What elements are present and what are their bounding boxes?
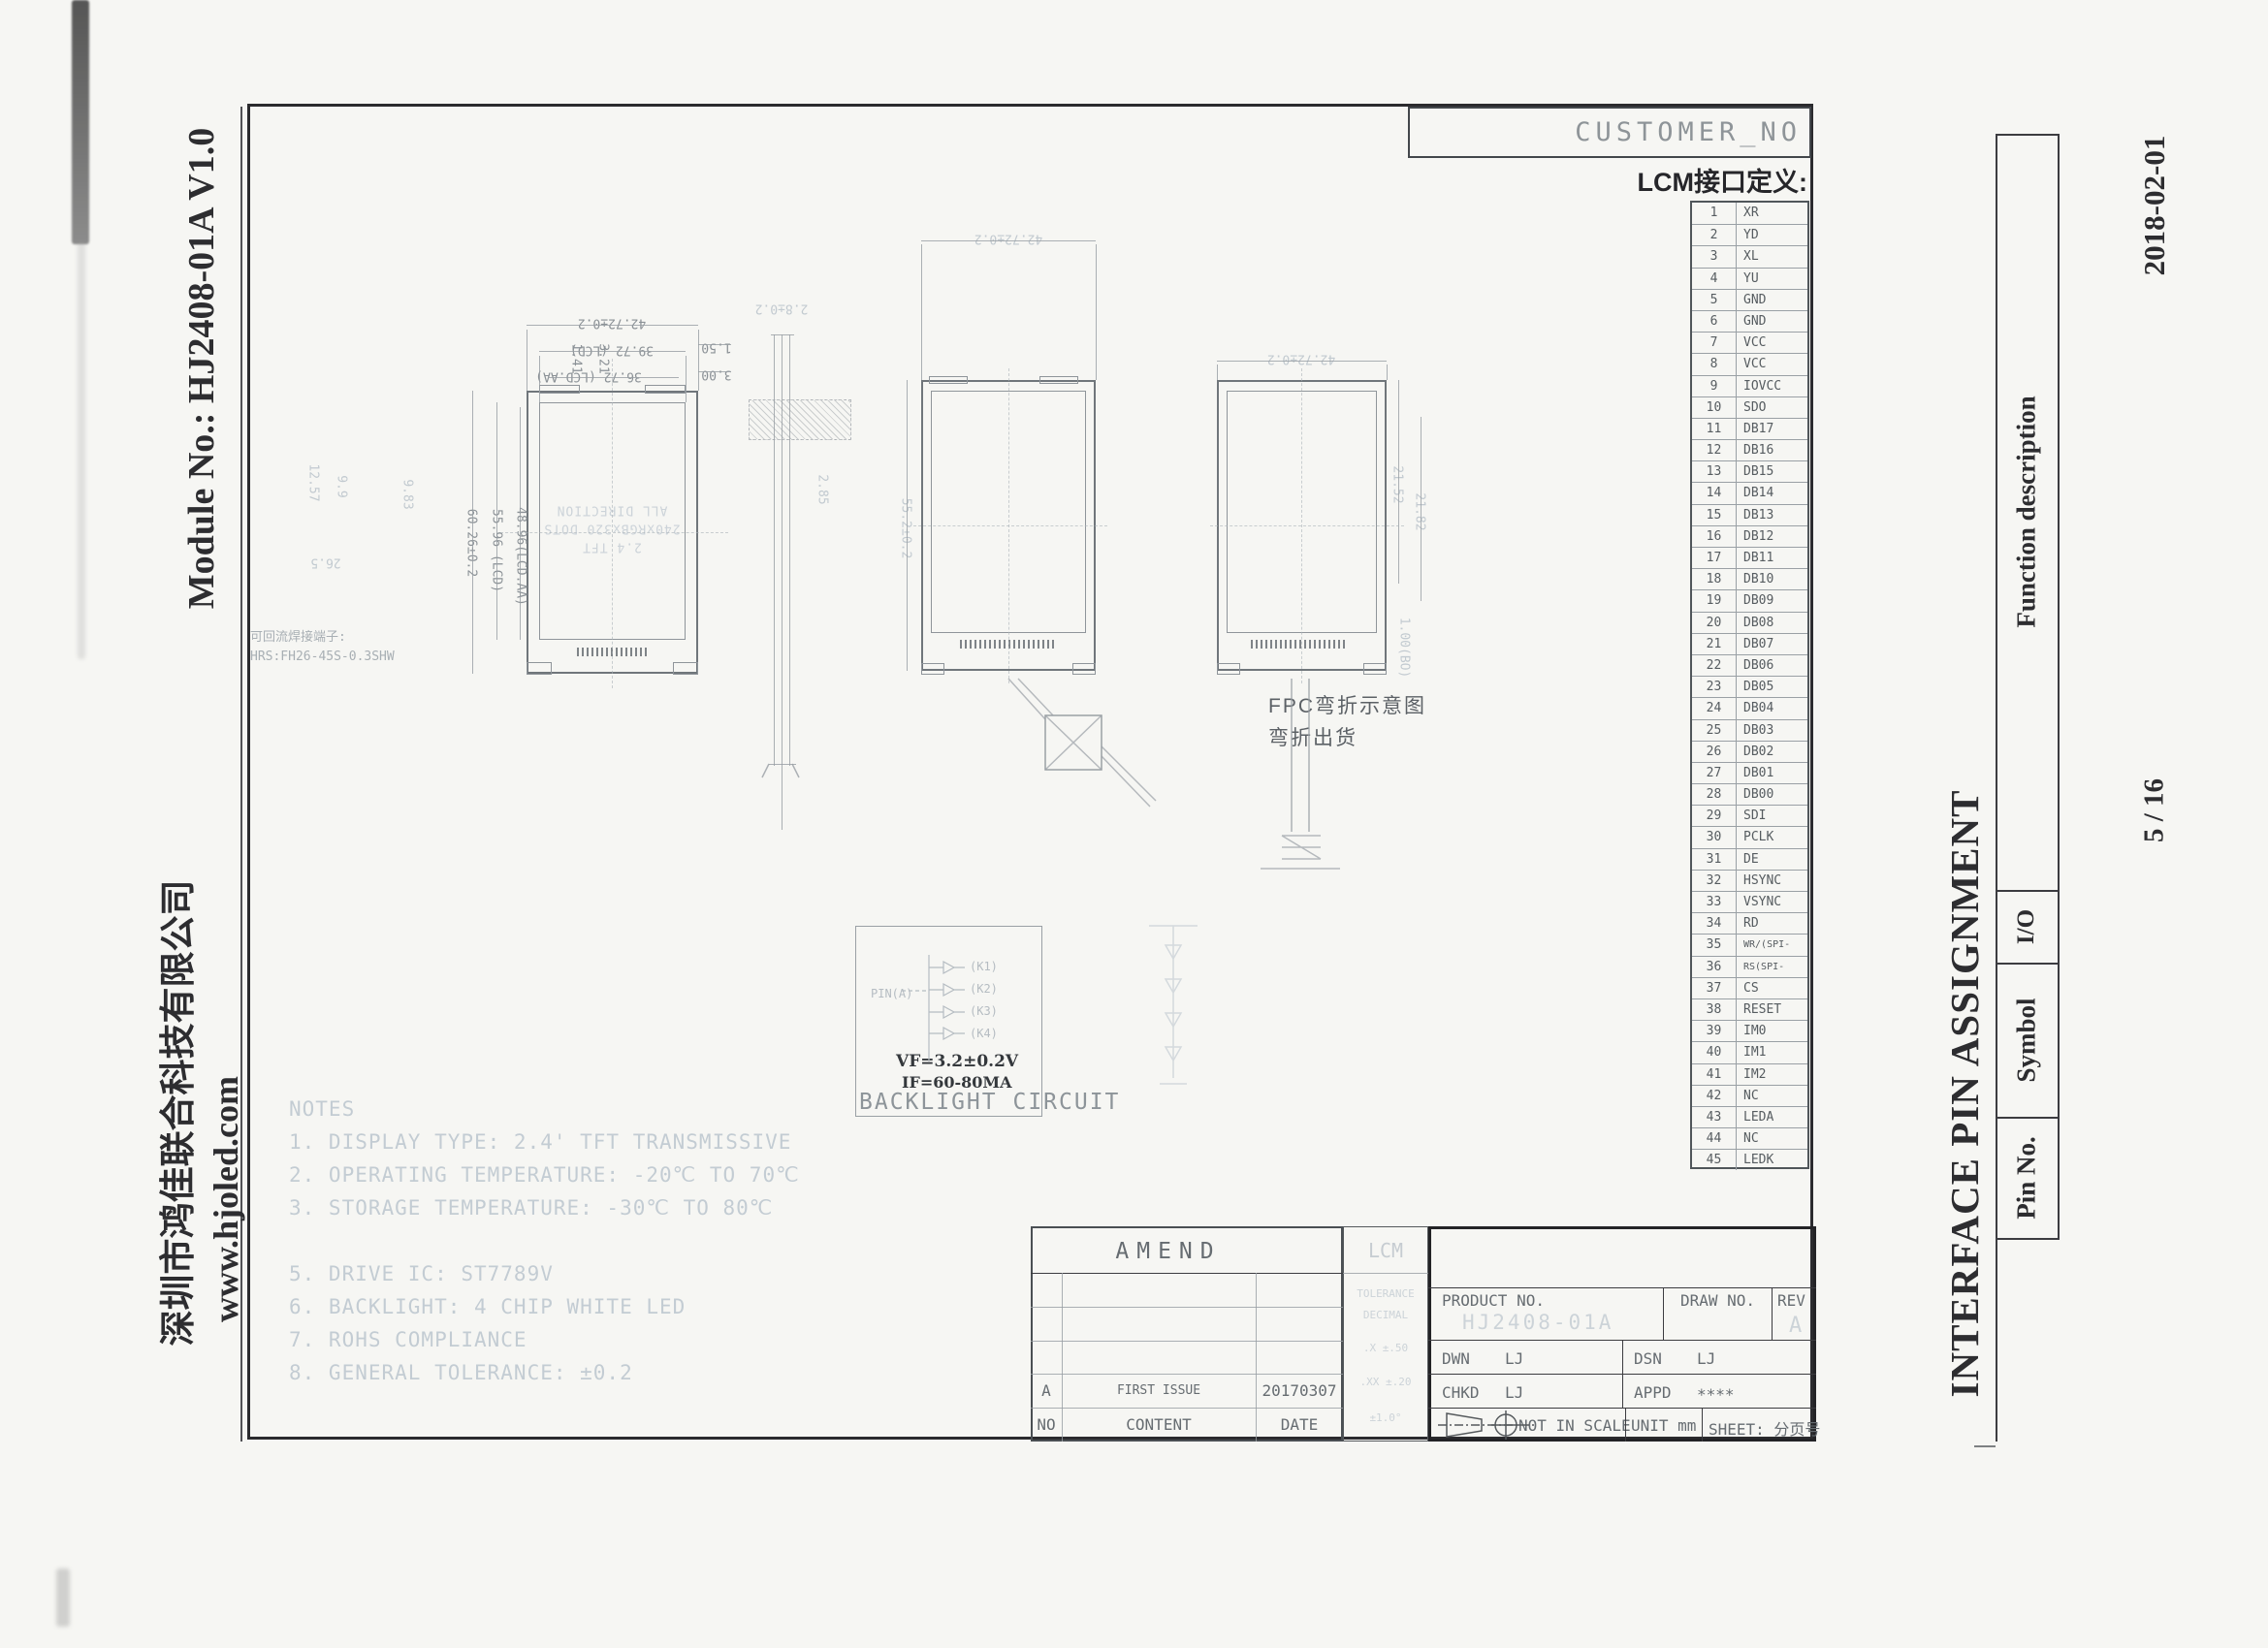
dim-label: 1.50 xyxy=(701,340,731,355)
scanned-datasheet-page: Module No.: HJ2408-01A V1.0 深圳市鸿佳联合科技有限公… xyxy=(0,0,2268,1648)
drawing-line xyxy=(1062,1273,1063,1442)
dim-label: 36.72 (LCD.AA) xyxy=(535,369,642,384)
dim-label: 48.96(LCD.AA) xyxy=(514,507,528,606)
drawing-line xyxy=(698,344,731,345)
drawing-line xyxy=(1387,364,1388,380)
drawing-line xyxy=(771,334,794,335)
dim-label: 42.72±0.2 xyxy=(974,232,1042,246)
drawing-line xyxy=(1428,1287,1816,1288)
drawing-line xyxy=(1702,1408,1703,1442)
centerline xyxy=(500,532,728,533)
dim-label: 9.83 xyxy=(400,479,415,509)
drawing-line xyxy=(1096,244,1097,380)
drawing-line xyxy=(2058,134,2060,1238)
drawing-line xyxy=(1663,1287,1664,1340)
drawing-overlay xyxy=(0,0,2268,1648)
drawing-line xyxy=(1996,1238,2060,1240)
drawing-line xyxy=(520,407,521,640)
drawing-line xyxy=(527,330,527,391)
tolerance-line: ±1.0° xyxy=(1369,1411,1401,1424)
drawing-line xyxy=(1996,134,2060,136)
drawing-line xyxy=(1996,134,1997,1442)
backlight-cathode-label: (K3) xyxy=(970,1004,998,1018)
drawing-line xyxy=(1031,1341,1343,1342)
drawing-line xyxy=(921,244,922,380)
dim-label: 60.26±0.2 xyxy=(464,509,479,577)
drawing-line xyxy=(1428,1408,1816,1409)
drawing-line xyxy=(496,402,497,640)
backlight-cathode-label: (K4) xyxy=(970,1027,998,1040)
drawing-line xyxy=(1398,380,1399,584)
tolerance-line: .XX ±.20 xyxy=(1360,1376,1412,1388)
drawing-line xyxy=(472,391,473,674)
dim-label: 21.82 xyxy=(1413,492,1427,530)
tolerance-line: DECIMAL xyxy=(1363,1309,1408,1321)
drawing-line xyxy=(1996,1117,2060,1119)
drawing-line xyxy=(527,325,698,326)
drawing-line xyxy=(1031,1307,1343,1308)
drawing-line xyxy=(539,356,540,402)
drawing-line xyxy=(1217,361,1387,362)
drawing-line xyxy=(1031,1408,1343,1409)
backlight-cathode-label: (K1) xyxy=(970,960,998,973)
drawing-line xyxy=(686,356,687,402)
drawing-line xyxy=(774,334,775,766)
drawing-line xyxy=(539,351,686,352)
dim-label: 9.9 xyxy=(335,475,349,497)
drawing-line xyxy=(1343,1273,1428,1274)
dim-label: 2.85 xyxy=(815,474,830,504)
drawing-line xyxy=(698,371,731,372)
drawing-line xyxy=(1031,1273,1343,1274)
drawing-line xyxy=(921,240,1096,241)
centerline xyxy=(612,359,613,688)
dim-label: 55.2±0.2 xyxy=(899,498,913,559)
dim-label: 21.52 xyxy=(1390,465,1405,503)
drawing-line xyxy=(548,377,679,378)
dim-label: 3.00 xyxy=(701,367,731,382)
dim-label: 42.72±0.2 xyxy=(1267,352,1335,366)
drawing-line xyxy=(1996,963,2060,965)
drawing-line xyxy=(1031,1374,1343,1375)
dim-label: 42.72±0.2 xyxy=(578,316,646,331)
dim-label: 1.00(BO) xyxy=(1397,618,1412,679)
centerline xyxy=(913,525,1107,526)
tolerance-line: .X ±.50 xyxy=(1363,1342,1408,1354)
dim-label: 12.57 xyxy=(306,463,321,501)
dim-label: 3.21 xyxy=(596,343,611,373)
drawing-line xyxy=(907,380,908,671)
centerline xyxy=(1210,525,1404,526)
drawing-line xyxy=(782,334,783,766)
drawing-line xyxy=(769,764,796,765)
dim-label: 2.8±0.2 xyxy=(755,301,809,316)
drawing-line xyxy=(1421,417,1421,601)
drawing-line xyxy=(1996,890,2060,892)
drawing-line xyxy=(1256,1273,1257,1442)
drawing-line xyxy=(789,334,790,766)
drawing-line xyxy=(782,766,783,830)
drawing-line xyxy=(1622,1340,1623,1408)
dim-label: 1.41 xyxy=(569,343,584,373)
drawing-line xyxy=(698,330,699,391)
drawing-line xyxy=(1625,1408,1626,1442)
backlight-cathode-label: (K2) xyxy=(970,982,998,996)
dim-label: 26.5 xyxy=(310,555,340,570)
drawing-line xyxy=(1772,1287,1773,1340)
tolerance-line: TOLERANCE xyxy=(1357,1287,1415,1300)
drawing-line xyxy=(1217,364,1218,380)
